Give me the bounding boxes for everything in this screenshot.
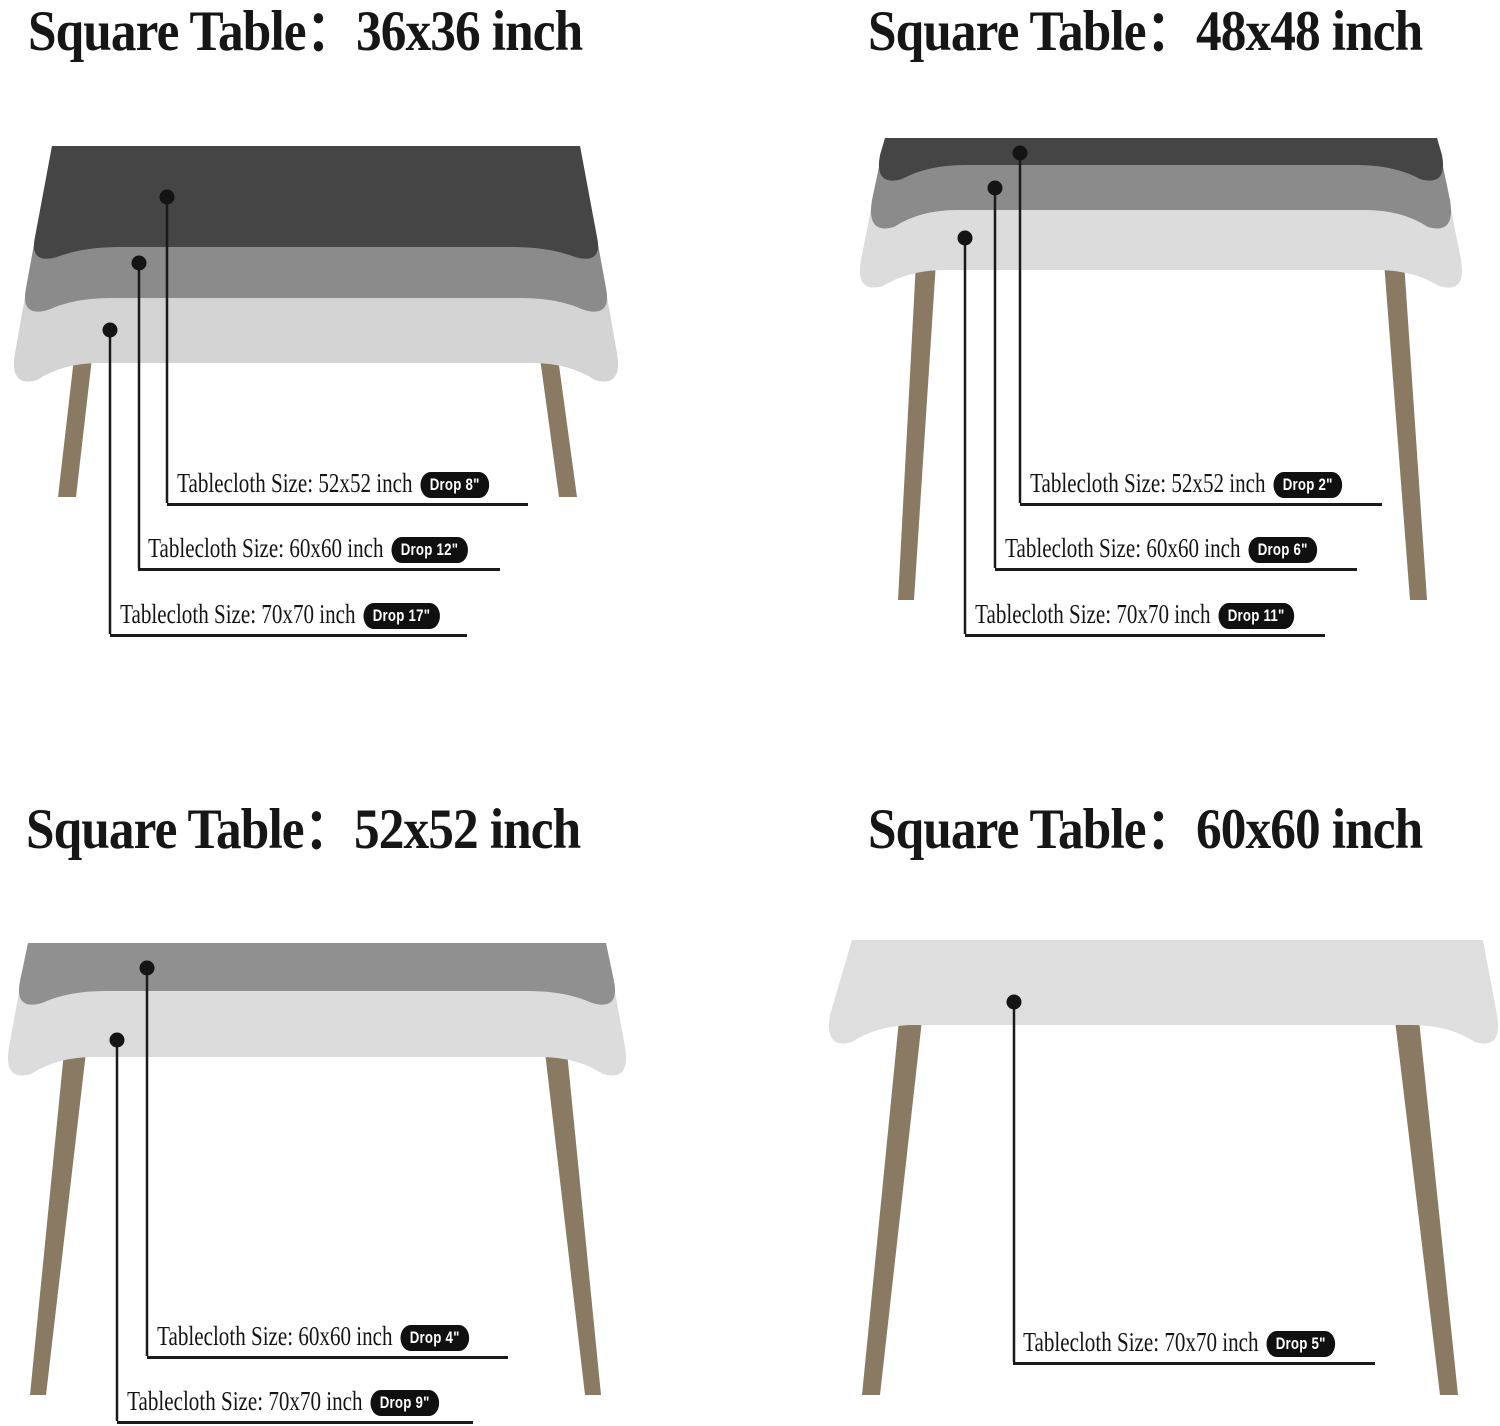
callout: Tablecloth Size: 70x70 inch Drop 5" [1013,1317,1375,1365]
illustration-canvas [0,0,1500,1426]
callout-dot [103,323,118,338]
section-title-text: Square Table：60x60 inch [868,800,1422,860]
callout-dot [110,1033,125,1048]
section-title-text: Square Table：52x52 inch [26,800,580,860]
callout: Tablecloth Size: 52x52 inch Drop 8" [167,458,528,506]
drop-badge: Drop 5" [1266,1331,1335,1357]
drop-badge: Drop 8" [420,472,489,498]
table-leg-right [540,358,577,497]
callout-dot [140,961,155,976]
callout-label: Tablecloth Size: 60x60 inch [1005,534,1240,562]
table-leg-left [58,358,92,497]
callout: Tablecloth Size: 60x60 inch Drop 4" [147,1311,508,1359]
drop-badge: Drop 11" [1218,603,1294,629]
callout-dot [1013,146,1028,161]
drop-badge: Drop 6" [1248,537,1317,563]
callout-label: Tablecloth Size: 70x70 inch [127,1387,362,1415]
callout-label: Tablecloth Size: 52x52 inch [1030,469,1265,497]
size-guide-page: Square Table：36x36 inch Square Table：48x… [0,0,1500,1426]
table-leg-left [898,262,936,600]
table-leg-right [1395,1020,1458,1395]
table-leg-left [862,1020,922,1395]
table-leg-left [30,1052,86,1395]
callout-label: Tablecloth Size: 70x70 inch [1023,1328,1258,1356]
callout: Tablecloth Size: 70x70 inch Drop 9" [117,1376,473,1424]
section-title-text: Square Table：48x48 inch [868,2,1422,62]
callout-label: Tablecloth Size: 52x52 inch [177,469,412,497]
section-title-text: Square Table：36x36 inch [28,2,582,62]
callout-label: Tablecloth Size: 60x60 inch [148,534,383,562]
drop-badge: Drop 17" [363,603,439,629]
callout-dot [160,190,175,205]
drop-badge: Drop 4" [400,1325,469,1351]
section-title-52x52: Square Table：52x52 inch [26,800,642,860]
drop-badge: Drop 2" [1273,472,1342,498]
callout-dot [132,256,147,271]
callout: Tablecloth Size: 70x70 inch Drop 17" [110,589,467,637]
section-title-48x48: Square Table：48x48 inch [868,2,1484,62]
callout-dot [988,181,1003,196]
callout-dot [1007,995,1022,1010]
callout: Tablecloth Size: 60x60 inch Drop 6" [995,523,1357,571]
drop-badge: Drop 12" [391,537,467,563]
callout-label: Tablecloth Size: 70x70 inch [120,600,355,628]
callout: Tablecloth Size: 70x70 inch Drop 11" [965,589,1325,637]
section-title-60x60: Square Table：60x60 inch [868,800,1484,860]
callout-label: Tablecloth Size: 70x70 inch [975,600,1210,628]
callout-label: Tablecloth Size: 60x60 inch [157,1322,392,1350]
callout-dot [958,231,973,246]
drop-badge: Drop 9" [370,1390,439,1416]
tablecloth-52x52-layer [34,146,598,259]
callout: Tablecloth Size: 52x52 inch Drop 2" [1020,458,1382,506]
callout: Tablecloth Size: 60x60 inch Drop 12" [138,523,500,571]
table-leg-right [545,1052,601,1395]
section-title-36x36: Square Table：36x36 inch [28,2,644,62]
table-leg-right [1384,262,1427,600]
